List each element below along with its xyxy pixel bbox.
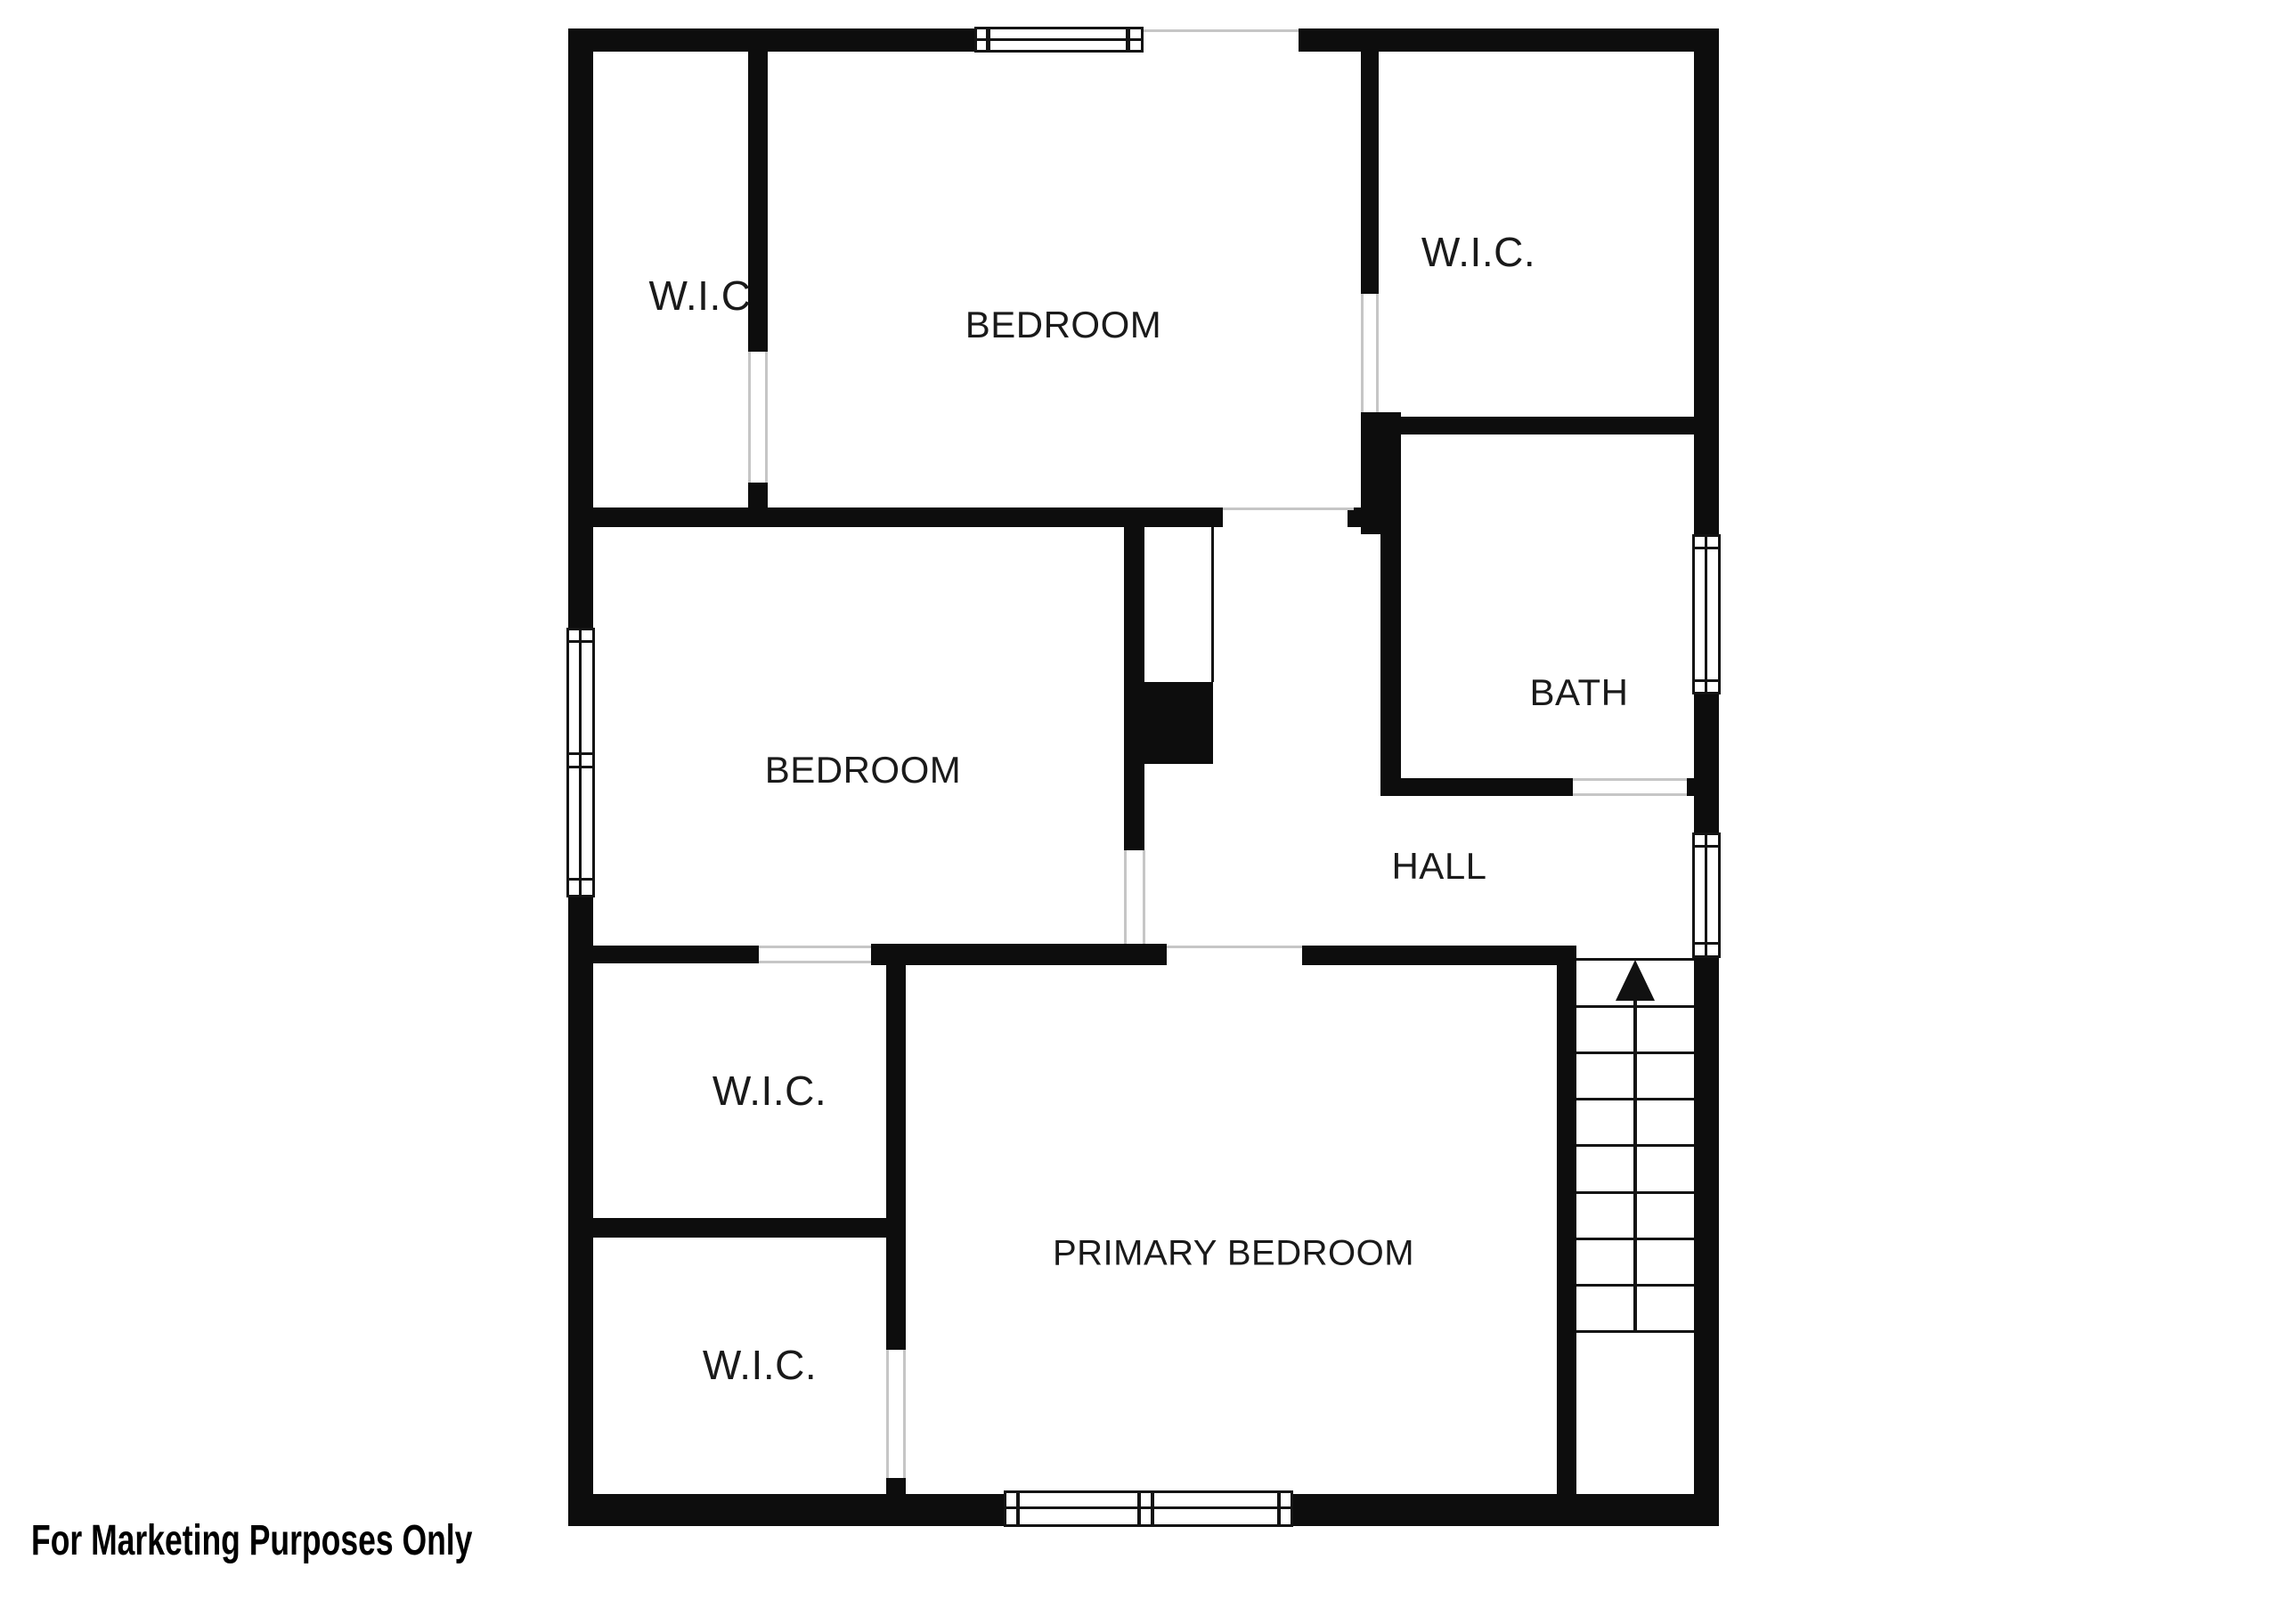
wall — [1124, 507, 1144, 850]
door-opening-line — [1223, 507, 1354, 510]
window-mullion — [1705, 832, 1707, 958]
floor-plan-page: W.I.CBEDROOMW.I.C.BATHBEDROOMHALLW.I.C.W… — [0, 0, 2280, 1624]
room-label-bedroom-top: BEDROOM — [965, 304, 1162, 346]
wall — [1361, 52, 1379, 294]
wall — [1124, 682, 1213, 764]
wall — [1687, 778, 1694, 796]
wall — [568, 946, 759, 963]
wall — [1380, 534, 1401, 778]
door-opening-line — [759, 961, 871, 963]
wall — [568, 28, 974, 52]
window-mullion — [1016, 1490, 1020, 1527]
window-mullion — [579, 628, 582, 897]
door-opening-line — [759, 946, 871, 948]
door-opening-line — [765, 352, 768, 483]
wall — [568, 895, 593, 1526]
room-label-bath: BATH — [1530, 671, 1629, 714]
wall — [1299, 28, 1719, 52]
window-mullion — [1705, 534, 1707, 694]
window-mullion — [1151, 1490, 1154, 1527]
stair-tread — [1576, 1330, 1694, 1333]
door-opening-line — [1143, 850, 1145, 944]
door-opening-line — [1167, 946, 1302, 948]
wall — [1348, 507, 1401, 527]
wall — [871, 944, 1167, 965]
wall — [568, 1494, 1004, 1526]
window-mullion — [566, 640, 595, 643]
window-mullion — [1137, 1490, 1141, 1527]
wall — [1380, 778, 1573, 796]
room-label-hall: HALL — [1391, 845, 1486, 888]
wall — [748, 483, 768, 507]
door-opening-line — [886, 1350, 889, 1478]
door-opening-line — [1376, 294, 1379, 412]
window-mullion — [1277, 1490, 1281, 1527]
room-label-primary-bedroom: PRIMARY BEDROOM — [1053, 1234, 1414, 1274]
window-mullion — [566, 752, 595, 755]
window-mullion — [1211, 527, 1214, 682]
room-label-wic-top-right: W.I.C. — [1421, 228, 1535, 276]
window-mullion — [566, 766, 595, 768]
window-mullion — [1692, 942, 1721, 945]
door-opening-line — [748, 352, 751, 483]
door-opening-line — [1124, 850, 1127, 944]
window-mullion — [1692, 679, 1721, 682]
wall — [1293, 1494, 1719, 1526]
window-mullion — [1692, 547, 1721, 549]
window-mullion — [974, 38, 1144, 41]
door-opening-line — [1361, 294, 1364, 412]
door-opening-line — [903, 1350, 906, 1478]
room-label-wic-middle: W.I.C. — [712, 1067, 826, 1115]
door-opening-line — [1573, 793, 1687, 796]
wall — [1694, 692, 1719, 832]
door-opening-line — [1144, 29, 1299, 32]
window-mullion — [1004, 1506, 1293, 1509]
wall — [1694, 958, 1719, 1526]
door-opening-line — [1573, 778, 1687, 781]
wall — [568, 28, 593, 628]
room-label-wic-bottom: W.I.C. — [703, 1341, 817, 1389]
stair-up-arrow — [1616, 960, 1655, 1001]
stair-direction-line — [1633, 988, 1637, 1330]
wall — [886, 963, 906, 1350]
marketing-disclaimer: For Marketing Purposes Only — [31, 1516, 472, 1565]
wall — [568, 1218, 906, 1238]
room-label-bedroom-middle: BEDROOM — [765, 749, 962, 792]
wall — [1361, 417, 1719, 434]
wall — [1302, 946, 1576, 965]
wall — [886, 1478, 906, 1494]
room-label-wic-top-left: W.I.C — [649, 272, 752, 320]
wall — [1557, 946, 1576, 1526]
window-mullion — [566, 878, 595, 881]
window-mullion — [1692, 845, 1721, 848]
wall — [1694, 28, 1719, 534]
